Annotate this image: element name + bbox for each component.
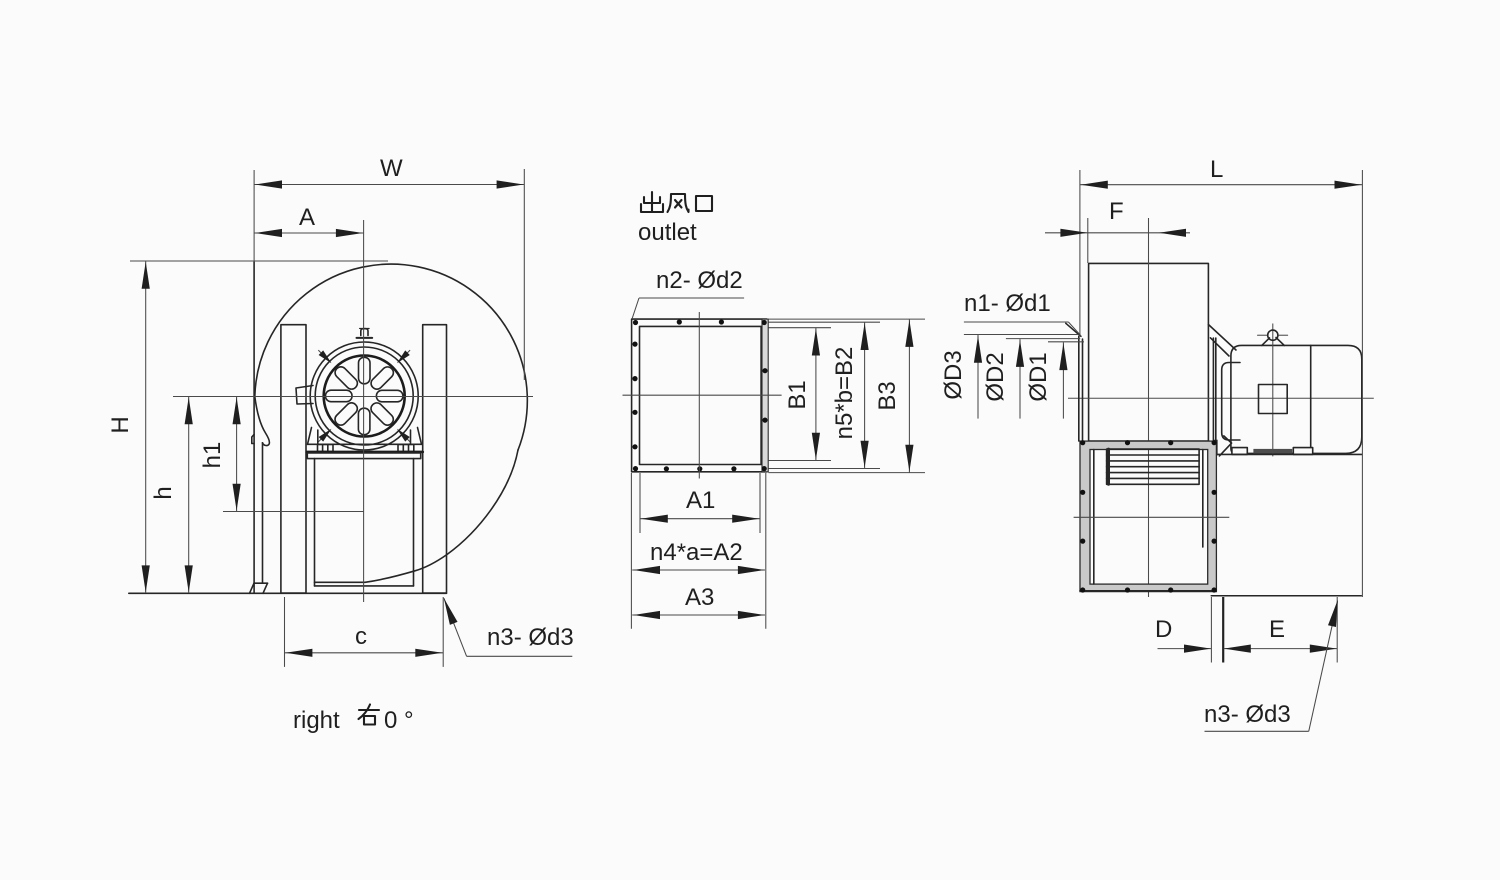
svg-text:outlet: outlet — [638, 219, 697, 246]
svg-text:n1- Ød1: n1- Ød1 — [964, 290, 1051, 317]
svg-text:W: W — [380, 155, 403, 182]
svg-text:n5*b=B2: n5*b=B2 — [831, 347, 858, 440]
svg-text:right: right — [293, 707, 340, 734]
svg-text:H: H — [107, 416, 134, 433]
svg-text:A: A — [299, 204, 315, 231]
svg-text:n2- Ød2: n2- Ød2 — [656, 267, 743, 294]
svg-text:h1: h1 — [199, 442, 226, 469]
svg-text:B3: B3 — [874, 381, 901, 410]
svg-text:n3- Ød3: n3- Ød3 — [487, 624, 574, 651]
svg-text:E: E — [1269, 616, 1285, 643]
svg-text:n4*a=A2: n4*a=A2 — [650, 539, 743, 566]
svg-text:F: F — [1109, 198, 1124, 225]
svg-text:0 °: 0 ° — [384, 707, 414, 734]
svg-text:ØD2: ØD2 — [982, 352, 1009, 401]
svg-text:A3: A3 — [685, 584, 714, 611]
svg-text:ØD3: ØD3 — [940, 350, 967, 399]
svg-text:B1: B1 — [784, 380, 811, 409]
svg-text:ØD1: ØD1 — [1025, 352, 1052, 401]
svg-text:h: h — [150, 486, 177, 499]
svg-text:A1: A1 — [686, 487, 715, 514]
svg-text:n3- Ød3: n3- Ød3 — [1204, 701, 1291, 728]
svg-text:c: c — [355, 623, 367, 650]
svg-text:D: D — [1155, 616, 1172, 643]
svg-text:L: L — [1210, 156, 1223, 183]
